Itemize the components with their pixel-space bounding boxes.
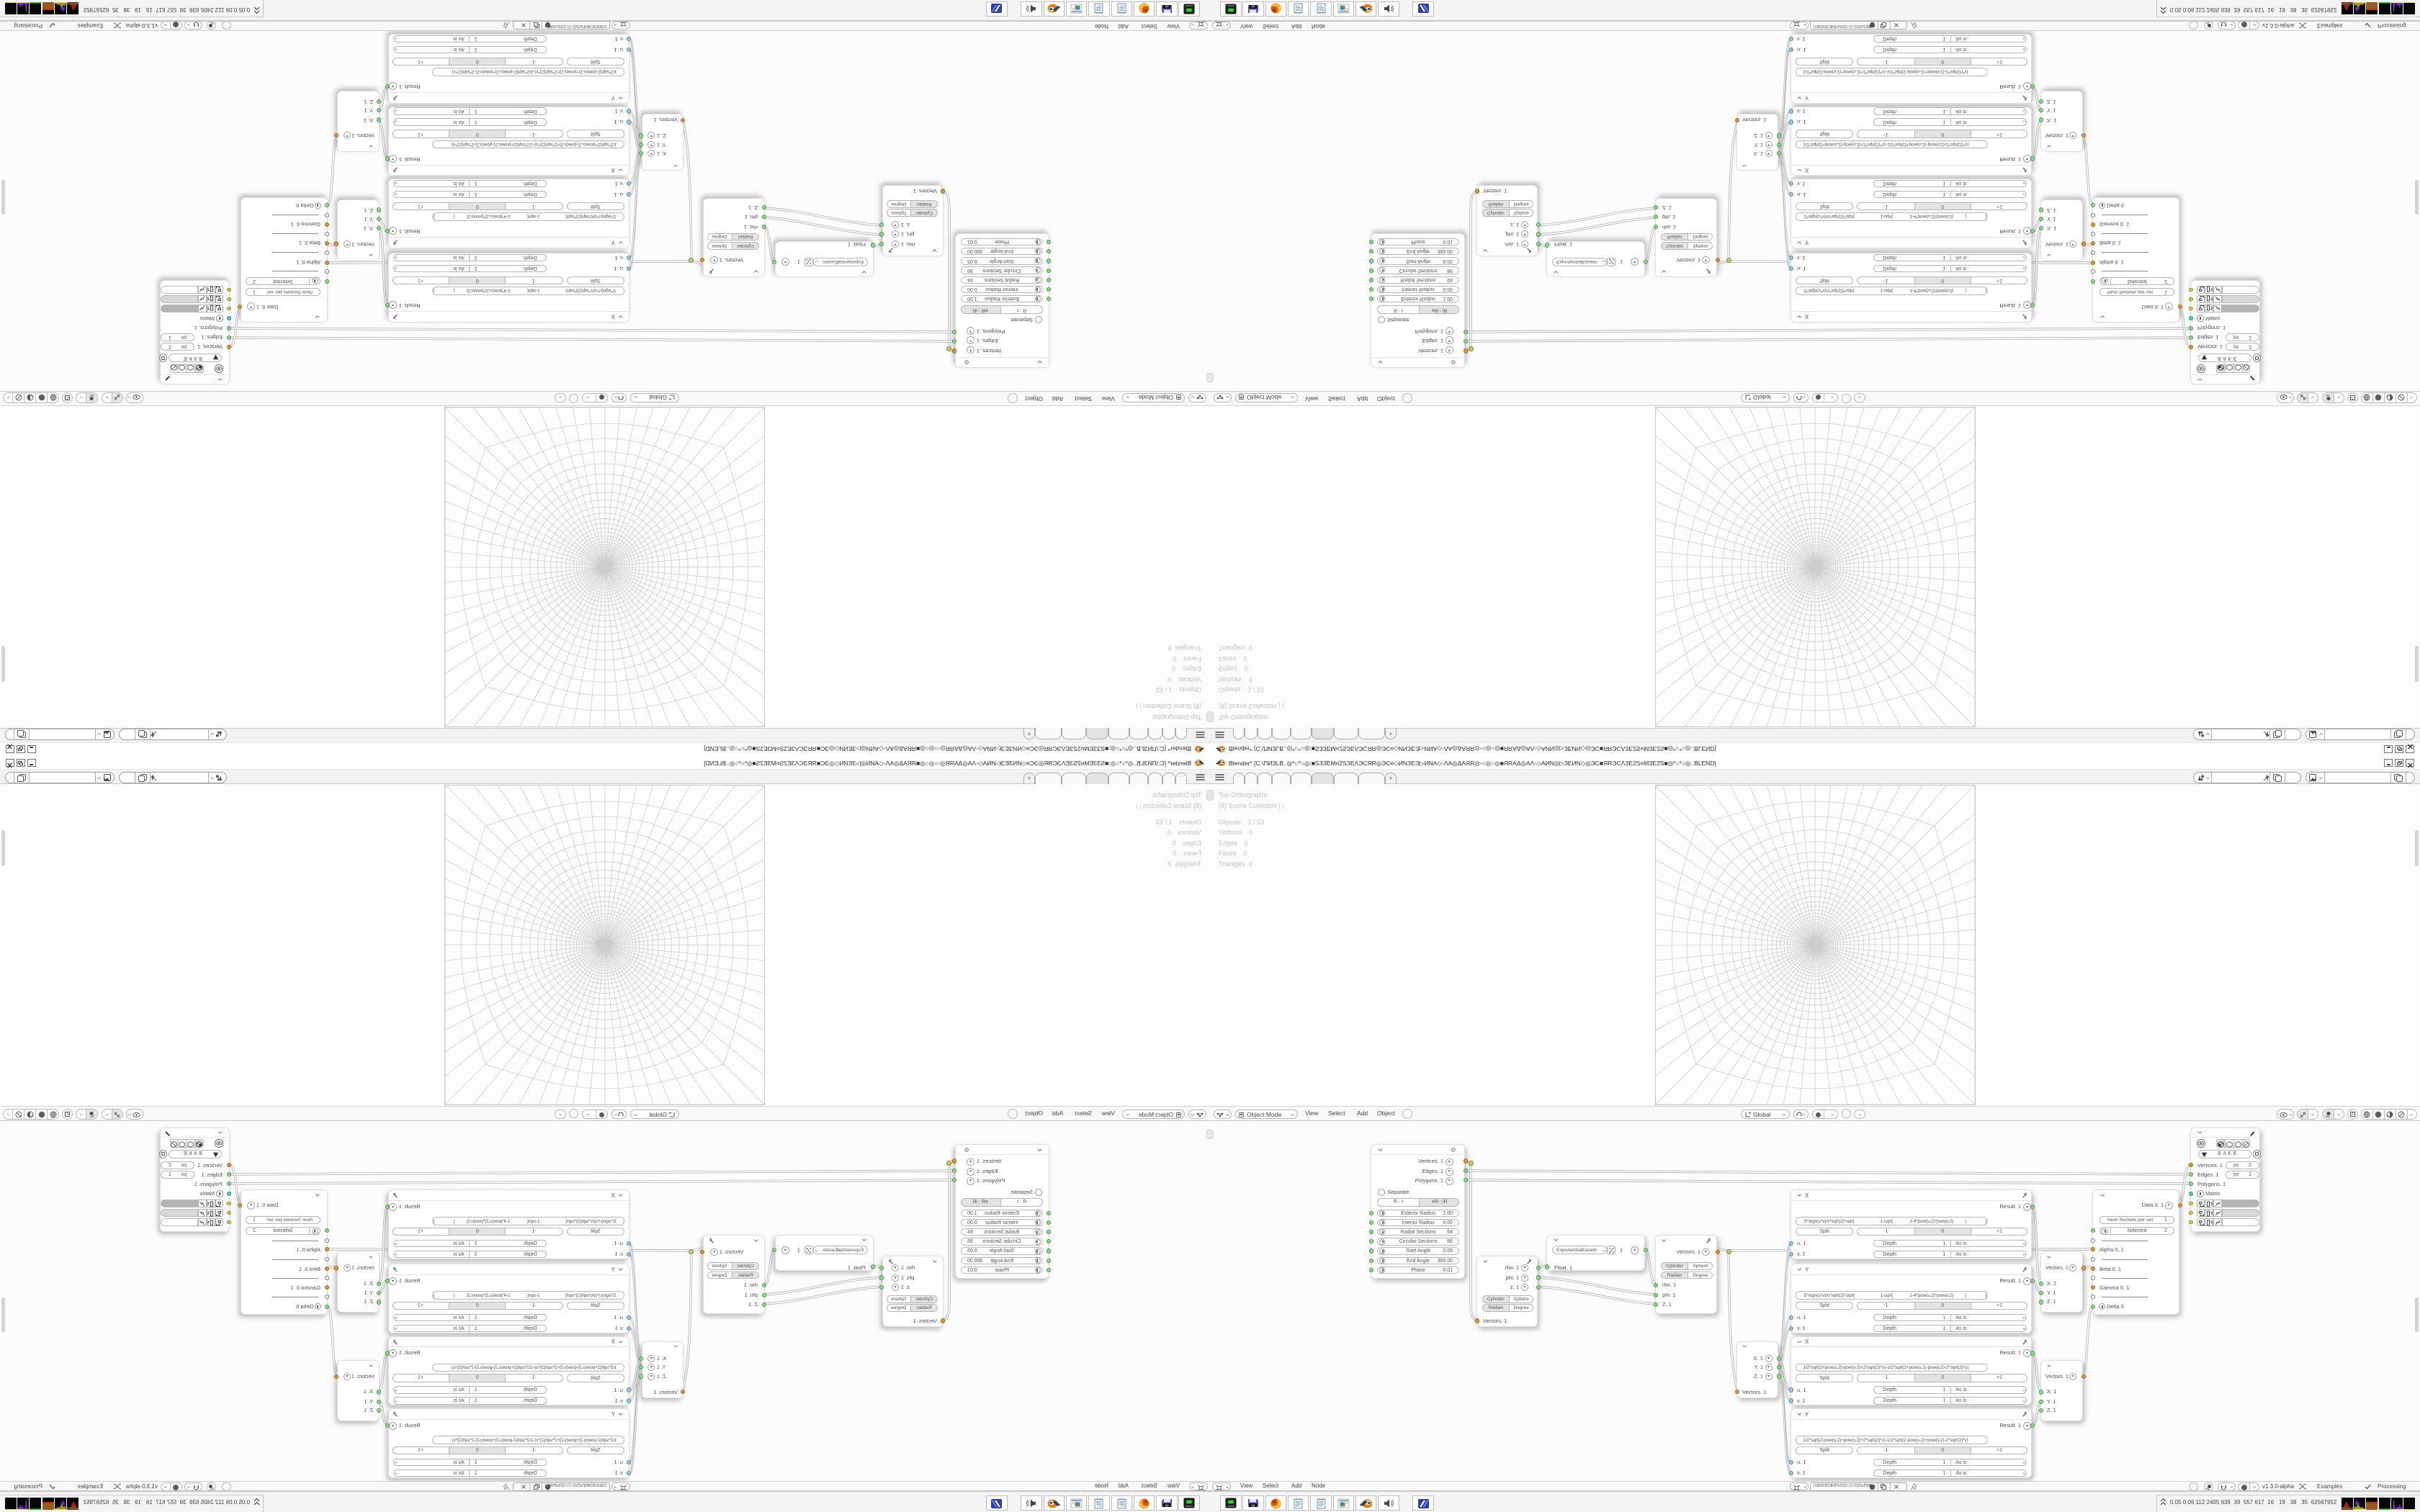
svg-text:64: 64 [1165, 5, 1169, 9]
svg-text:64: 64 [1251, 5, 1255, 9]
svg-text:64: 64 [1165, 1503, 1169, 1507]
svg-text:64: 64 [1251, 1503, 1255, 1507]
